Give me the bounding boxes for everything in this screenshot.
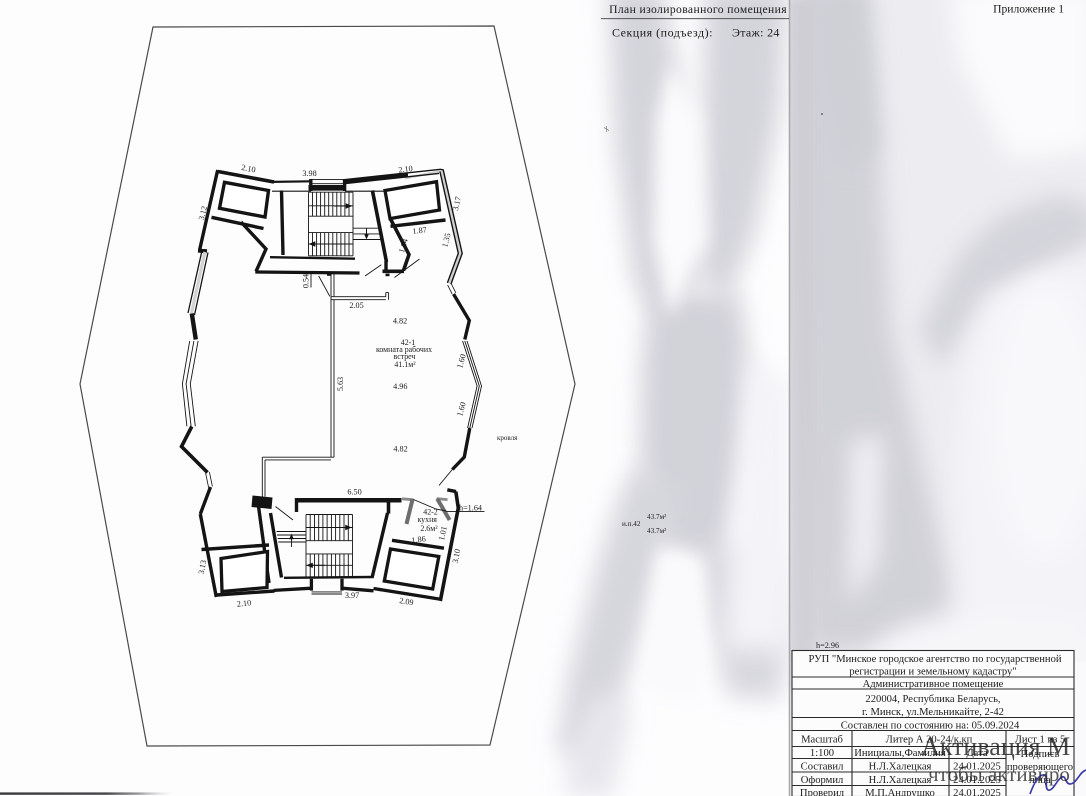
svg-text:кухня: кухня bbox=[417, 515, 437, 524]
svg-text:РУП "Минское городское агентст: РУП "Минское городское агентство по госу… bbox=[808, 654, 1061, 665]
svg-text:регистрации и земельному кадас: регистрации и земельному кадастру" bbox=[849, 667, 1016, 678]
svg-text:Составил: Составил bbox=[801, 762, 844, 773]
svg-text:24.01.2025: 24.01.2025 bbox=[953, 788, 1001, 796]
svg-text:Оформил: Оформил bbox=[801, 775, 844, 786]
svg-text:2.10: 2.10 bbox=[236, 598, 251, 608]
svg-text:0.54: 0.54 bbox=[302, 274, 311, 288]
svg-text:h=1.64: h=1.64 bbox=[459, 504, 482, 513]
svg-text:и.п.42: и.п.42 bbox=[622, 520, 641, 528]
svg-text:3.98: 3.98 bbox=[302, 169, 316, 178]
svg-text:h=2.96: h=2.96 bbox=[816, 641, 839, 650]
svg-text:Секция (подъезд):: Секция (подъезд): bbox=[612, 26, 713, 40]
svg-text:4.82: 4.82 bbox=[393, 317, 407, 326]
svg-text:Этаж: 24: Этаж: 24 bbox=[732, 26, 780, 40]
svg-text:Н.Л.Халецкая: Н.Л.Халецкая bbox=[869, 775, 932, 786]
svg-text:Проверил: Проверил bbox=[800, 788, 845, 796]
svg-text:кровля: кровля bbox=[497, 434, 518, 442]
svg-text:4.82: 4.82 bbox=[393, 445, 407, 454]
svg-text:2.05: 2.05 bbox=[349, 301, 363, 310]
svg-text:2.6м²: 2.6м² bbox=[420, 524, 438, 533]
svg-text:чтобы активиро: чтобы активиро bbox=[928, 762, 1070, 786]
svg-text:4.96: 4.96 bbox=[393, 382, 407, 391]
svg-text:1:100: 1:100 bbox=[810, 748, 834, 759]
svg-text:Административное помещение: Административное помещение bbox=[863, 679, 1004, 690]
svg-text:г. Минск, ул.Мельникайте, 2-42: г. Минск, ул.Мельникайте, 2-42 bbox=[862, 707, 1004, 718]
svg-text:План изолированного помещения: План изолированного помещения bbox=[609, 3, 787, 16]
svg-text:220004, Республика Беларусь,: 220004, Республика Беларусь, bbox=[865, 694, 1000, 705]
svg-text:5.63: 5.63 bbox=[336, 377, 345, 391]
svg-text:41.1м²: 41.1м² bbox=[394, 360, 416, 369]
svg-text:Масштаб: Масштаб bbox=[801, 735, 843, 746]
svg-text:6.50: 6.50 bbox=[347, 488, 361, 497]
svg-text:Приложение 1: Приложение 1 bbox=[993, 3, 1064, 16]
svg-text:43.7м²: 43.7м² bbox=[647, 527, 666, 535]
svg-text:М.П.Андрушко: М.П.Андрушко bbox=[865, 788, 935, 796]
svg-text:1.87: 1.87 bbox=[412, 225, 427, 236]
svg-text:Составлен по состоянию на: 05.: Составлен по состоянию на: 05.09.2024 bbox=[841, 721, 1020, 732]
svg-text:Активация М: Активация М bbox=[921, 732, 1070, 761]
svg-text:Н.Л.Халецкая: Н.Л.Халецкая bbox=[869, 762, 932, 773]
svg-text:2.10: 2.10 bbox=[398, 164, 413, 175]
svg-text:43.7м²: 43.7м² bbox=[647, 513, 666, 521]
svg-text:3.97: 3.97 bbox=[345, 591, 359, 600]
